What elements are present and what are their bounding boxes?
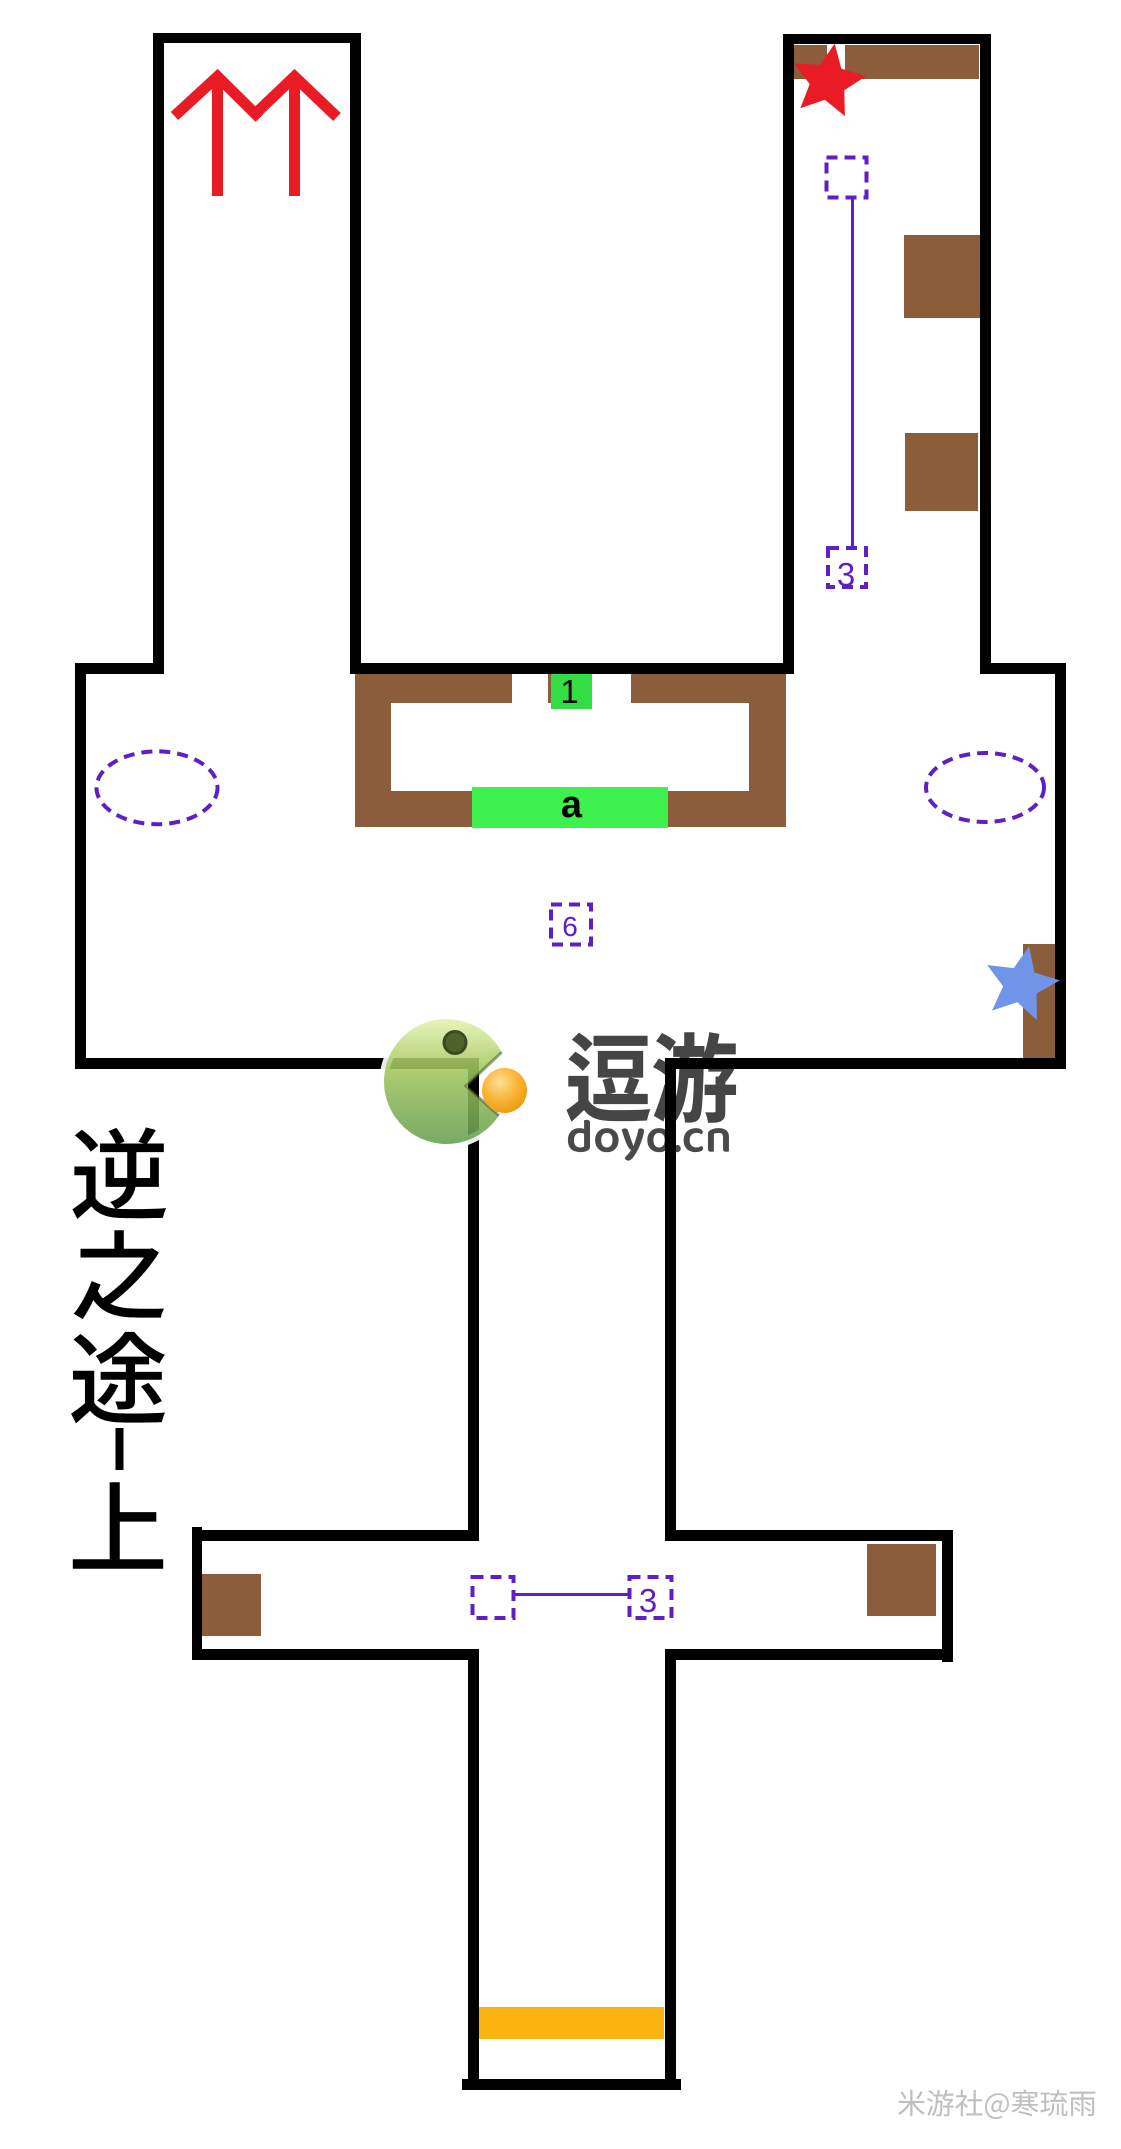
svg-text:a: a: [561, 784, 583, 826]
svg-text:6: 6: [562, 911, 578, 942]
svg-text:3: 3: [837, 556, 855, 593]
svg-text:1: 1: [560, 673, 578, 710]
svg-text:3: 3: [639, 1582, 657, 1619]
